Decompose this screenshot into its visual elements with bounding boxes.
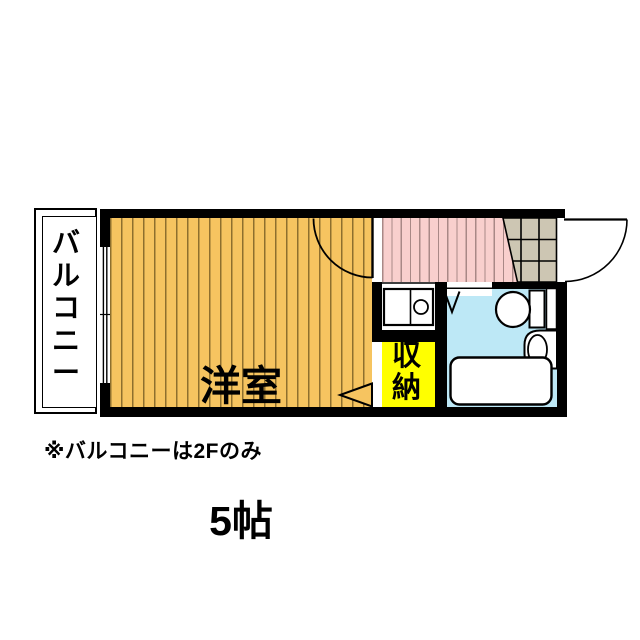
bathtub (451, 358, 552, 405)
toilet (496, 289, 557, 330)
kitchen-sink (384, 289, 433, 325)
room-name: 洋室 (110, 364, 372, 409)
toilet-tank (530, 291, 545, 328)
floorplan: バルコニー 洋室 5帖 収納 ※バルコニーは2Fのみ (0, 0, 640, 640)
toilet-shelf (547, 289, 557, 330)
entrance-genkan-tile (503, 218, 557, 282)
entrance-door (564, 220, 627, 282)
note-text: ※バルコニーは2Fのみ (44, 435, 262, 465)
toilet-bowl (496, 292, 530, 327)
room-door (314, 218, 373, 278)
bathroom-folding-door (445, 288, 493, 312)
balcony-window (100, 247, 110, 383)
room-size: 5帖 (110, 499, 372, 544)
storage-label: 収納 (392, 341, 421, 404)
balcony-label: バルコニー (52, 227, 80, 390)
